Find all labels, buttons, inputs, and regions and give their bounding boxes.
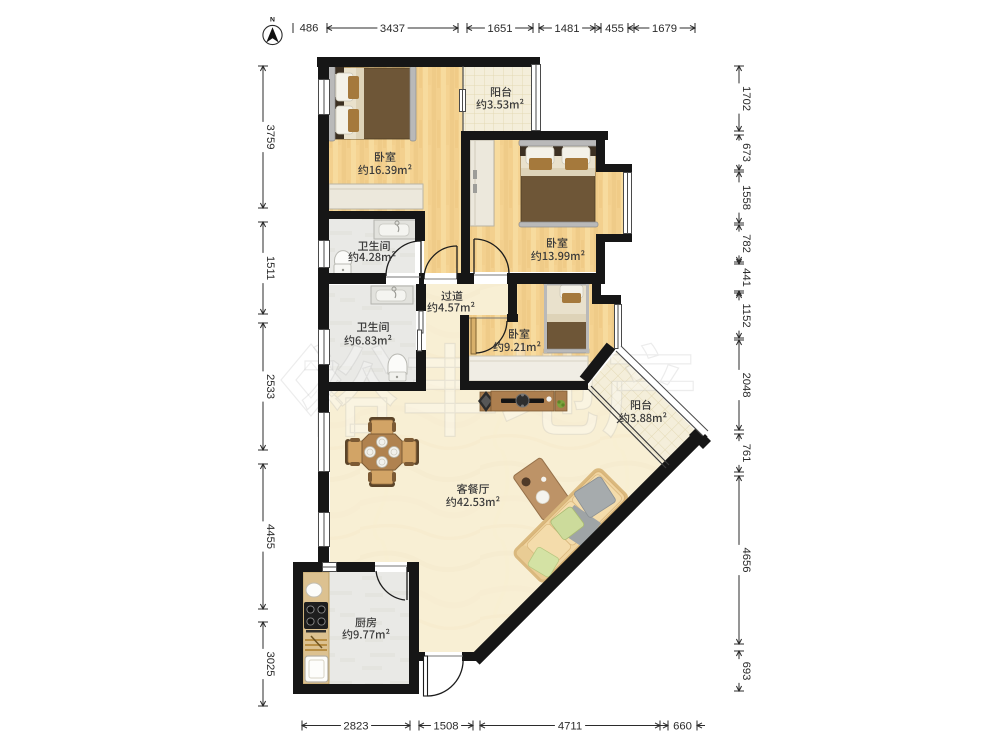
svg-text:660: 660 (673, 720, 692, 732)
svg-text:761: 761 (740, 444, 752, 463)
svg-text:1152: 1152 (740, 303, 752, 327)
svg-text:3437: 3437 (380, 23, 405, 35)
svg-text:1508: 1508 (433, 720, 458, 732)
svg-text:455: 455 (605, 23, 624, 35)
svg-text:1679: 1679 (652, 23, 677, 35)
svg-text:1702: 1702 (740, 86, 752, 111)
svg-text:693: 693 (740, 662, 752, 681)
svg-text:782: 782 (740, 234, 752, 253)
svg-text:486: 486 (300, 23, 319, 35)
svg-text:441: 441 (740, 268, 752, 287)
svg-text:3759: 3759 (264, 124, 276, 149)
svg-text:N: N (270, 17, 275, 24)
svg-text:2048: 2048 (740, 372, 752, 397)
svg-text:2823: 2823 (343, 720, 368, 732)
svg-text:673: 673 (740, 143, 752, 162)
svg-text:1481: 1481 (554, 23, 579, 35)
svg-text:2533: 2533 (264, 374, 276, 399)
svg-text:4656: 4656 (740, 547, 752, 572)
svg-text:1511: 1511 (264, 256, 276, 280)
svg-text:4711: 4711 (558, 720, 582, 732)
svg-text:1558: 1558 (740, 185, 752, 210)
svg-text:1651: 1651 (487, 23, 512, 35)
svg-text:3025: 3025 (264, 651, 276, 676)
svg-text:4455: 4455 (264, 524, 276, 549)
